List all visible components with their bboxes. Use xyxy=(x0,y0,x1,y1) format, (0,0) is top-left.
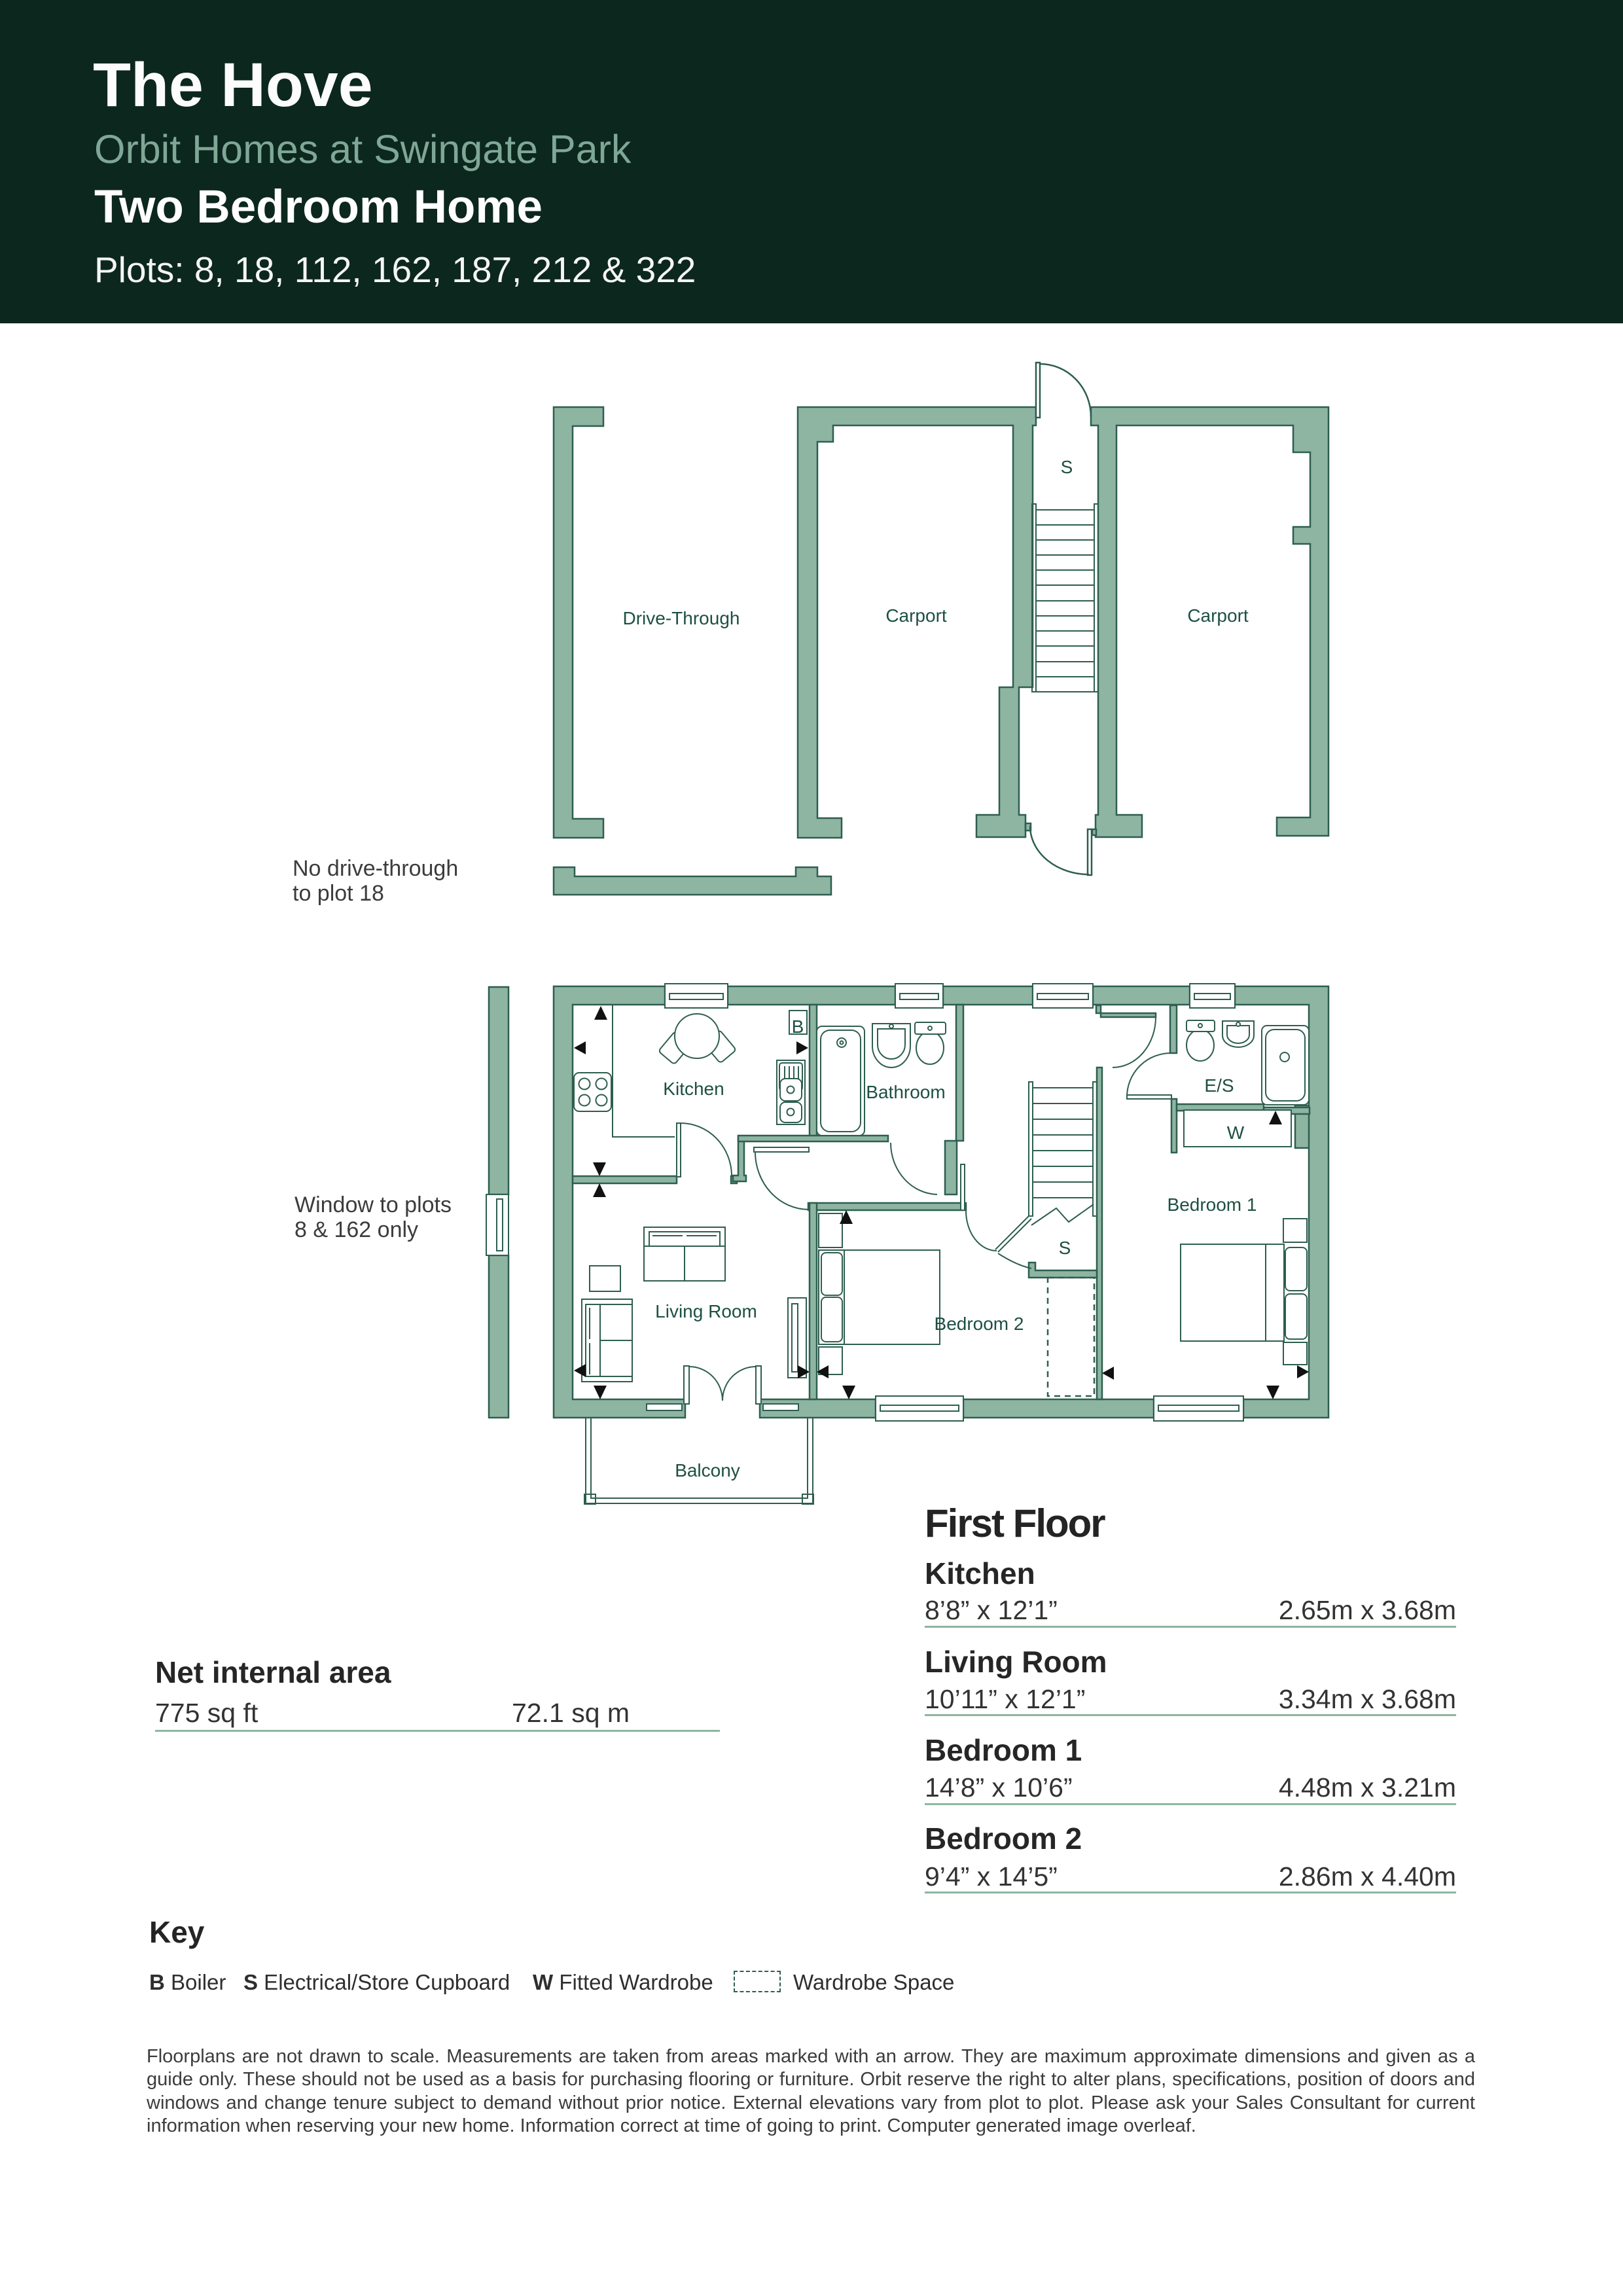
svg-text:S: S xyxy=(1059,1238,1071,1258)
svg-text:Balcony: Balcony xyxy=(675,1460,740,1480)
svg-text:W: W xyxy=(1227,1122,1245,1143)
svg-text:B: B xyxy=(792,1016,804,1037)
svg-text:Kitchen: Kitchen xyxy=(663,1079,724,1099)
svg-text:E/S: E/S xyxy=(1204,1075,1234,1096)
svg-text:Drive-Through: Drive-Through xyxy=(623,608,740,628)
svg-text:Bedroom 2: Bedroom 2 xyxy=(935,1314,1024,1334)
svg-text:S: S xyxy=(1061,457,1073,477)
svg-text:Bathroom: Bathroom xyxy=(866,1082,945,1102)
svg-text:Living Room: Living Room xyxy=(655,1301,757,1321)
svg-text:Bedroom 1: Bedroom 1 xyxy=(1168,1194,1257,1215)
svg-text:Carport: Carport xyxy=(885,605,947,626)
svg-text:Carport: Carport xyxy=(1187,605,1249,626)
